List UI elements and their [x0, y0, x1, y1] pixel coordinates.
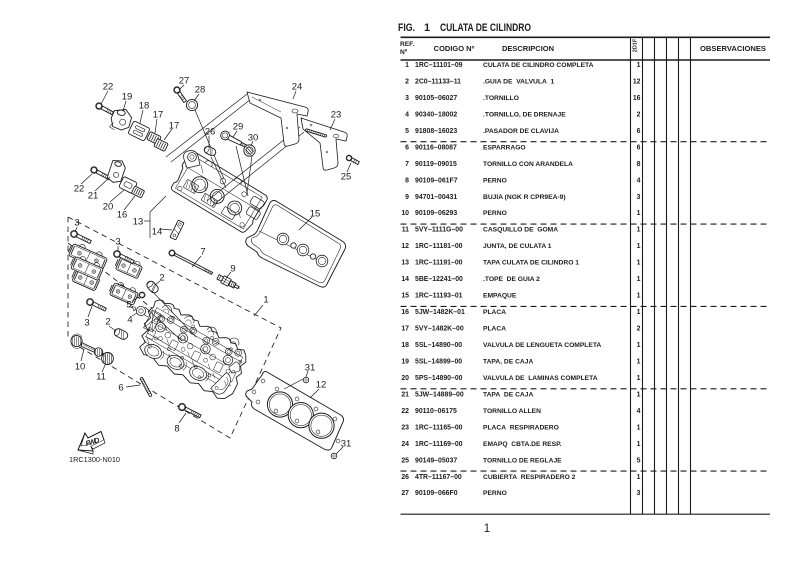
svg-text:20: 20: [401, 375, 409, 382]
svg-text:30: 30: [248, 132, 259, 143]
svg-text:22: 22: [74, 183, 85, 194]
svg-text:14: 14: [401, 276, 409, 283]
svg-text:91808–16023: 91808–16023: [415, 128, 457, 135]
svg-text:5BE–12241–00: 5BE–12241–00: [415, 276, 463, 283]
svg-text:PLACA: PLACA: [483, 309, 506, 316]
svg-text:12: 12: [633, 79, 641, 86]
svg-text:1RC–11101–09: 1RC–11101–09: [415, 62, 463, 69]
svg-text:22: 22: [103, 81, 114, 92]
svg-text:1: 1: [424, 22, 430, 34]
svg-text:2: 2: [637, 326, 641, 333]
svg-text:28: 28: [195, 84, 206, 95]
svg-text:6: 6: [637, 128, 641, 135]
svg-text:7: 7: [405, 161, 409, 168]
svg-text:17: 17: [169, 120, 180, 131]
svg-text:21: 21: [401, 391, 409, 398]
svg-text:1: 1: [637, 293, 641, 300]
svg-text:6: 6: [637, 144, 641, 151]
svg-text:1: 1: [637, 474, 641, 481]
svg-text:2: 2: [159, 272, 164, 283]
svg-text:5SL–14899–00: 5SL–14899–00: [415, 359, 462, 366]
svg-text:5: 5: [637, 457, 641, 464]
svg-text:PERNO: PERNO: [483, 490, 507, 497]
svg-text:CULATA DE CILINDRO COMPLETA: CULATA DE CILINDRO COMPLETA: [483, 62, 594, 69]
svg-text:24: 24: [292, 81, 303, 92]
svg-text:TAPA CULATA DE CILINDRO 1: TAPA CULATA DE CILINDRO 1: [483, 260, 579, 267]
svg-text:13: 13: [401, 260, 409, 267]
svg-text:DESCRIPCION: DESCRIPCION: [502, 44, 554, 53]
svg-text:4TR–11167–00: 4TR–11167–00: [415, 474, 462, 481]
svg-text:PERNO: PERNO: [483, 177, 507, 184]
svg-text:12: 12: [401, 243, 409, 250]
svg-text:1RC1300-N010: 1RC1300-N010: [69, 455, 120, 464]
svg-text:90340–18002: 90340–18002: [415, 111, 457, 118]
svg-text:2: 2: [105, 316, 110, 327]
svg-text:90105–06027: 90105–06027: [415, 95, 457, 102]
svg-text:1: 1: [637, 375, 641, 382]
svg-text:27: 27: [401, 490, 409, 497]
svg-text:1RC–11169–00: 1RC–11169–00: [415, 441, 463, 448]
svg-text:9: 9: [230, 263, 235, 274]
svg-text:1: 1: [637, 391, 641, 398]
svg-text:REF.: REF.: [400, 41, 414, 48]
svg-text:3: 3: [84, 317, 89, 328]
svg-text:13: 13: [133, 216, 144, 227]
svg-text:VALVULA DE LENGUETA COMPLETA: VALVULA DE LENGUETA COMPLETA: [483, 342, 601, 349]
svg-text:ESPARRAGO: ESPARRAGO: [483, 144, 526, 151]
svg-text:6: 6: [118, 382, 123, 393]
svg-text:26: 26: [401, 474, 409, 481]
svg-text:21: 21: [88, 190, 99, 201]
svg-text:15: 15: [310, 208, 321, 219]
svg-text:Nº: Nº: [400, 49, 408, 56]
svg-text:16: 16: [633, 95, 641, 102]
svg-text:16: 16: [401, 309, 409, 316]
svg-text:PERNO: PERNO: [483, 210, 507, 217]
svg-text:5SL–14890–00: 5SL–14890–00: [415, 342, 462, 349]
svg-text:90119–09015: 90119–09015: [415, 161, 457, 168]
svg-text:EMPAQUE: EMPAQUE: [483, 293, 517, 300]
svg-text:11: 11: [402, 227, 409, 234]
svg-text:5: 5: [126, 299, 131, 310]
svg-text:2: 2: [405, 79, 409, 86]
svg-text:18: 18: [401, 342, 409, 349]
svg-text:1: 1: [637, 359, 641, 366]
svg-text:PLACA RESPIRADERO: PLACA RESPIRADERO: [483, 424, 559, 431]
svg-text:1RC–11193–01: 1RC–11193–01: [415, 293, 463, 300]
svg-text:BUJIA (NGK R CPR9EA-9): BUJIA (NGK R CPR9EA-9): [483, 194, 566, 201]
svg-text:CUBIERTA RESPIRADERO 2: CUBIERTA RESPIRADERO 2: [483, 474, 576, 481]
svg-text:90109–066F0: 90109–066F0: [415, 490, 458, 497]
svg-text:1: 1: [637, 210, 641, 217]
svg-text:1: 1: [405, 62, 409, 69]
svg-text:94701–00431: 94701–00431: [415, 194, 457, 201]
svg-text:90109–061F7: 90109–061F7: [415, 177, 458, 184]
svg-text:4: 4: [637, 408, 641, 415]
svg-text:1: 1: [637, 243, 641, 250]
svg-text:3: 3: [115, 236, 120, 247]
svg-text:1RC–11191–00: 1RC–11191–00: [415, 260, 463, 267]
svg-text:22: 22: [401, 408, 409, 415]
svg-text:19: 19: [401, 359, 409, 366]
svg-text:1RC–11181–00: 1RC–11181–00: [415, 243, 463, 250]
svg-text:2: 2: [637, 111, 641, 118]
svg-text:10: 10: [401, 210, 409, 217]
svg-text:.PASADOR DE CLAVIJA: .PASADOR DE CLAVIJA: [483, 128, 559, 135]
svg-text:1: 1: [637, 62, 641, 69]
svg-text:27: 27: [179, 75, 190, 86]
svg-text:31: 31: [341, 438, 352, 449]
svg-text:20: 20: [103, 201, 114, 212]
svg-text:18: 18: [139, 100, 150, 111]
svg-text:1: 1: [637, 424, 641, 431]
svg-text:90149–05037: 90149–05037: [415, 457, 457, 464]
svg-text:1: 1: [637, 260, 641, 267]
svg-text:23: 23: [401, 424, 409, 431]
svg-text:90110–06175: 90110–06175: [415, 408, 457, 415]
svg-text:5JW–14889–00: 5JW–14889–00: [415, 391, 464, 398]
svg-text:5VY–1482K–00: 5VY–1482K–00: [415, 326, 464, 333]
svg-text:25: 25: [401, 457, 409, 464]
svg-text:11: 11: [96, 371, 106, 382]
svg-text:CASQUILLO DE GOMA: CASQUILLO DE GOMA: [483, 227, 558, 234]
svg-text:5: 5: [405, 128, 409, 135]
svg-text:15: 15: [401, 293, 409, 300]
svg-text:4: 4: [637, 177, 641, 184]
svg-text:CULATA DE CILINDRO: CULATA DE CILINDRO: [440, 22, 531, 34]
svg-text:TAPA, DE CAJA: TAPA, DE CAJA: [483, 359, 533, 366]
svg-text:5JW–1482K–01: 5JW–1482K–01: [415, 309, 465, 316]
svg-text:9: 9: [405, 194, 409, 201]
svg-text:25: 25: [341, 171, 352, 182]
svg-text:TORNILLO ALLEN: TORNILLO ALLEN: [483, 408, 541, 415]
svg-text:JUNTA, DE CULATA 1: JUNTA, DE CULATA 1: [483, 243, 552, 250]
svg-text:1: 1: [637, 309, 641, 316]
svg-text:7: 7: [200, 246, 205, 257]
svg-text:1: 1: [484, 523, 490, 535]
svg-text:24: 24: [401, 441, 409, 448]
svg-text:1RC–11165–00: 1RC–11165–00: [415, 424, 463, 431]
svg-text:12: 12: [316, 379, 327, 390]
svg-text:90116–08087: 90116–08087: [415, 144, 457, 151]
svg-text:10: 10: [75, 361, 86, 372]
svg-text:23: 23: [331, 109, 342, 120]
svg-text:4: 4: [127, 314, 132, 325]
svg-text:8: 8: [174, 423, 179, 434]
svg-text:8: 8: [405, 177, 409, 184]
svg-text:3: 3: [637, 490, 641, 497]
svg-text:16: 16: [117, 209, 128, 220]
svg-text:8: 8: [637, 161, 641, 168]
svg-text:1: 1: [637, 342, 641, 349]
svg-text:1: 1: [263, 294, 268, 305]
svg-text:1: 1: [637, 227, 641, 234]
svg-text:.GUIA DE VALVULA 1: .GUIA DE VALVULA 1: [483, 79, 554, 86]
svg-text:19: 19: [122, 91, 133, 102]
svg-text:17: 17: [401, 326, 409, 333]
svg-text:14: 14: [152, 226, 163, 237]
svg-text:5VY–1111G–00: 5VY–1111G–00: [415, 227, 463, 234]
svg-text:4: 4: [405, 111, 409, 118]
svg-text:OBSERVACIONES: OBSERVACIONES: [700, 44, 766, 53]
svg-text:5PS–14890–00: 5PS–14890–00: [415, 375, 463, 382]
svg-text:3: 3: [637, 194, 641, 201]
svg-text:17: 17: [153, 109, 164, 120]
svg-text:2C0–11133–11: 2C0–11133–11: [415, 79, 461, 86]
svg-text:TORNILLO CON ARANDELA: TORNILLO CON ARANDELA: [483, 161, 573, 168]
svg-text:.TORNILLO: .TORNILLO: [483, 95, 519, 102]
svg-text:VALVULA DE LAMINAS COMPLETA: VALVULA DE LAMINAS COMPLETA: [483, 375, 598, 382]
svg-text:2D1F: 2D1F: [633, 38, 639, 52]
svg-text:CODIGO Nº: CODIGO Nº: [434, 44, 475, 53]
svg-text:EMAPQ CBTA.DE RESP.: EMAPQ CBTA.DE RESP.: [483, 441, 562, 448]
svg-text:FIG.: FIG.: [398, 22, 415, 34]
svg-text:1: 1: [637, 441, 641, 448]
svg-text:TORNILLO DE REGLAJE: TORNILLO DE REGLAJE: [483, 457, 562, 464]
svg-text:29: 29: [233, 121, 244, 132]
svg-text:31: 31: [305, 362, 316, 373]
svg-text:6: 6: [405, 144, 409, 151]
svg-text:3: 3: [74, 217, 79, 228]
svg-text:1: 1: [637, 276, 641, 283]
svg-text:90109–06293: 90109–06293: [415, 210, 457, 217]
svg-text:PLACA: PLACA: [483, 326, 506, 333]
svg-text:.TORNILLO, DE DRENAJE: .TORNILLO, DE DRENAJE: [483, 111, 566, 118]
svg-text:3: 3: [405, 95, 409, 102]
svg-text:.TOPE DE GUIA 2: .TOPE DE GUIA 2: [483, 276, 540, 283]
svg-text:TAPA DE CAJA: TAPA DE CAJA: [483, 391, 533, 398]
